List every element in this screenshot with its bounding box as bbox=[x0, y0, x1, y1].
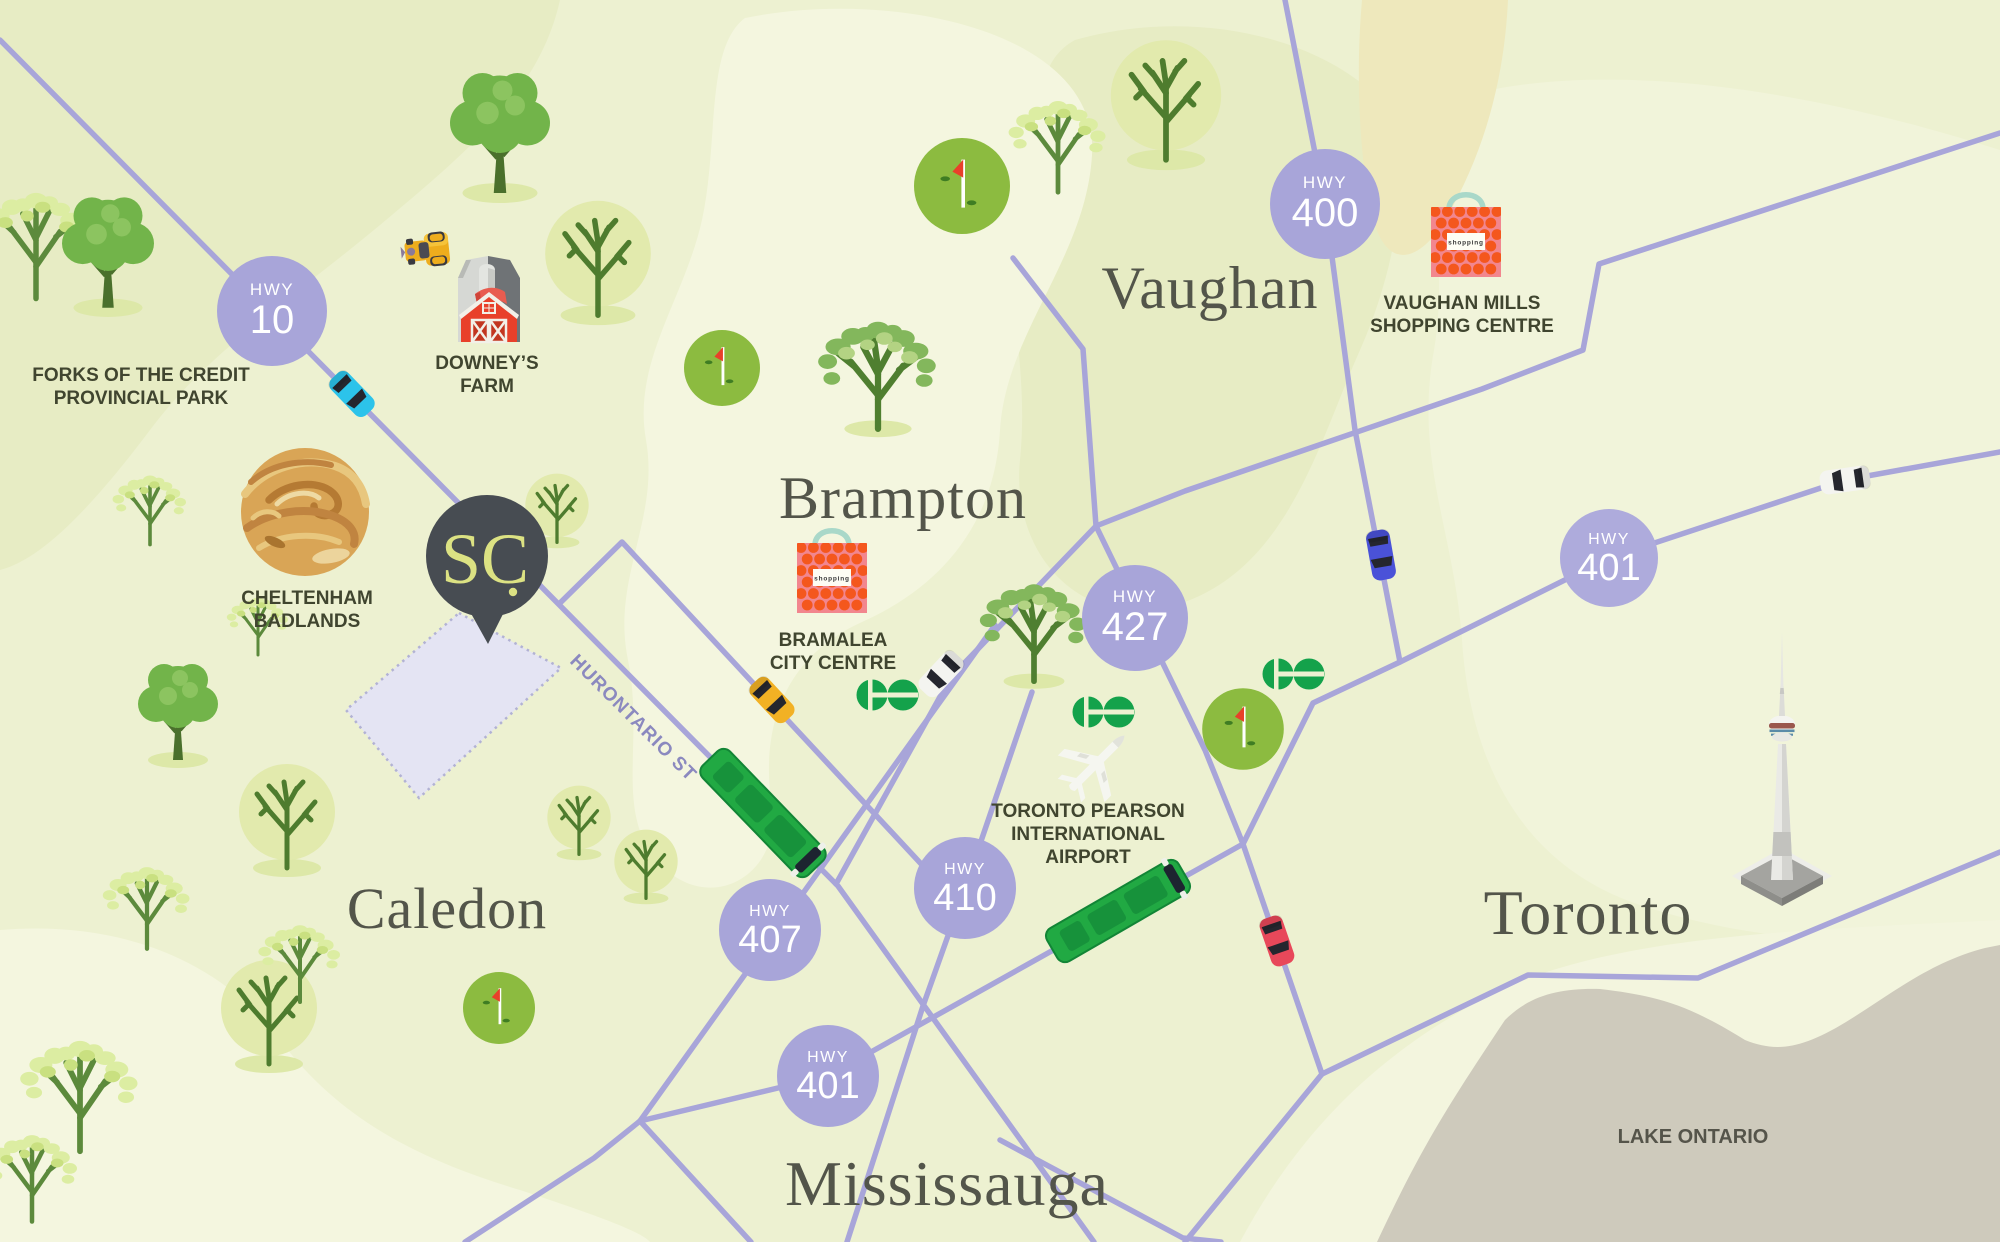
svg-text:CITY CENTRE: CITY CENTRE bbox=[770, 653, 896, 674]
svg-text:HWY: HWY bbox=[807, 1049, 849, 1066]
svg-text:SHOPPING CENTRE: SHOPPING CENTRE bbox=[1370, 316, 1554, 337]
svg-text:AIRPORT: AIRPORT bbox=[1045, 847, 1131, 868]
svg-text:DOWNEY’S: DOWNEY’S bbox=[435, 353, 538, 374]
svg-text:Toronto: Toronto bbox=[1484, 877, 1693, 948]
svg-text:10: 10 bbox=[250, 298, 295, 342]
svg-text:BRAMALEA: BRAMALEA bbox=[779, 630, 888, 651]
svg-text:401: 401 bbox=[796, 1065, 859, 1107]
svg-text:Mississauga: Mississauga bbox=[785, 1148, 1109, 1219]
svg-text:LAKE ONTARIO: LAKE ONTARIO bbox=[1618, 1126, 1769, 1148]
svg-text:HWY: HWY bbox=[1588, 531, 1630, 548]
svg-text:HWY: HWY bbox=[749, 903, 791, 920]
svg-text:FORKS OF THE CREDIT: FORKS OF THE CREDIT bbox=[32, 365, 250, 386]
svg-text:TORONTO PEARSON: TORONTO PEARSON bbox=[991, 801, 1185, 822]
svg-text:400: 400 bbox=[1292, 191, 1359, 235]
svg-text:401: 401 bbox=[1577, 547, 1640, 589]
svg-text:VAUGHAN MILLS: VAUGHAN MILLS bbox=[1384, 293, 1541, 314]
svg-text:Brampton: Brampton bbox=[779, 465, 1027, 531]
svg-text:Caledon: Caledon bbox=[347, 876, 547, 941]
svg-text:427: 427 bbox=[1102, 605, 1169, 649]
svg-text:SC: SC bbox=[441, 519, 529, 599]
svg-text:FARM: FARM bbox=[460, 376, 514, 397]
svg-text:HWY: HWY bbox=[944, 861, 986, 878]
svg-text:407: 407 bbox=[738, 919, 801, 961]
svg-text:BADLANDS: BADLANDS bbox=[254, 611, 361, 632]
svg-text:HWY: HWY bbox=[1303, 173, 1347, 192]
svg-text:CHELTENHAM: CHELTENHAM bbox=[241, 588, 373, 609]
svg-text:Vaughan: Vaughan bbox=[1102, 255, 1319, 321]
svg-text:INTERNATIONAL: INTERNATIONAL bbox=[1011, 824, 1165, 845]
svg-text:HWY: HWY bbox=[1113, 587, 1157, 606]
svg-text:410: 410 bbox=[933, 877, 996, 919]
svg-text:HWY: HWY bbox=[250, 280, 294, 299]
svg-text:PROVINCIAL PARK: PROVINCIAL PARK bbox=[54, 388, 229, 409]
